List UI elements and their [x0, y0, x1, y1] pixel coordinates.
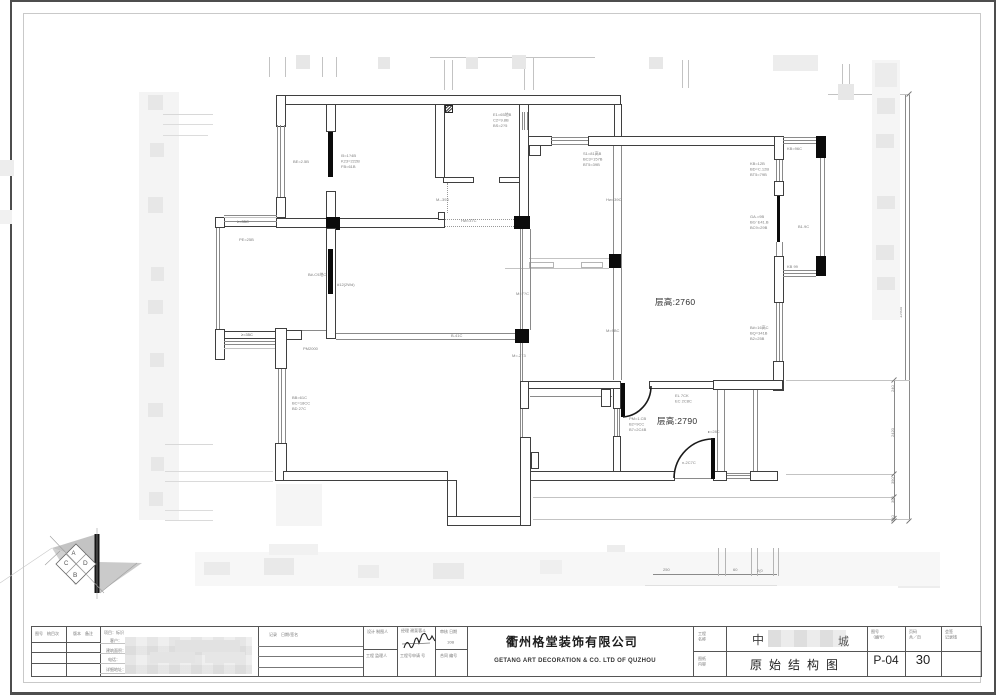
svg-text:B: B: [73, 572, 77, 579]
svg-text:C: C: [64, 561, 69, 567]
svg-text:A: A: [72, 551, 76, 557]
svg-text:D: D: [83, 560, 88, 567]
